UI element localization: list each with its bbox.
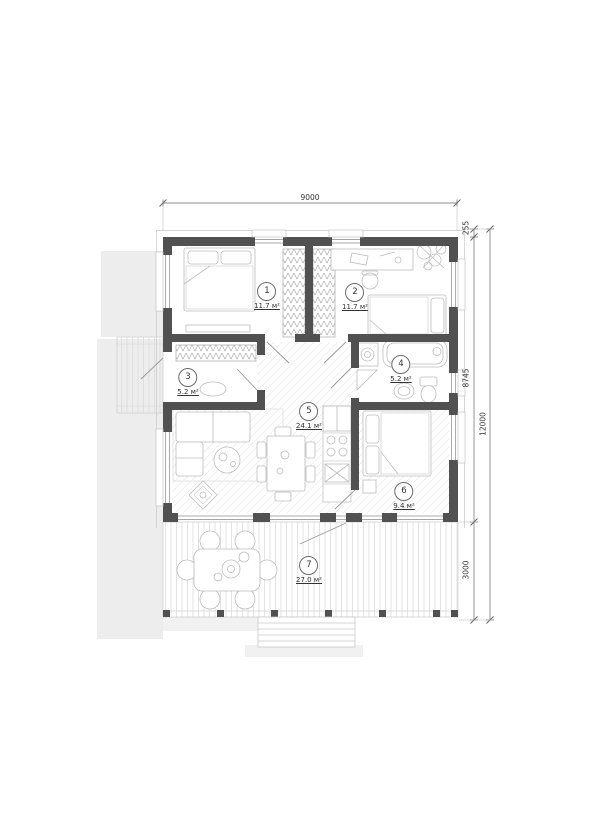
floor-plan-canvas: 9000 255 8745 3000 12000 1 11.7 м² 2 11.…: [0, 0, 600, 823]
furniture-room-2: [313, 244, 446, 337]
window-sill: [156, 429, 163, 506]
room-number: 5: [300, 402, 319, 421]
pillow: [431, 298, 444, 333]
window-sill: [458, 412, 465, 463]
wardrobe: [176, 345, 256, 361]
plant: [417, 244, 446, 270]
room-number: 6: [394, 482, 413, 501]
pillow: [188, 251, 218, 264]
dining-chair: [275, 492, 291, 501]
dining-chair: [257, 442, 266, 458]
dining-chair: [275, 427, 291, 436]
room-label-7: 7 27.0 м²: [296, 556, 322, 584]
cup: [239, 552, 249, 562]
washing-machine: [357, 343, 378, 366]
wardrobe: [283, 249, 305, 337]
room-number: 4: [391, 355, 410, 374]
cup: [214, 573, 222, 581]
room-area: 9.4 м²: [393, 502, 414, 510]
window-sill: [156, 252, 163, 311]
dining-chair: [306, 442, 315, 458]
dining-chair: [257, 466, 266, 482]
outdoor-chair: [200, 589, 220, 609]
dresser: [186, 325, 250, 332]
outdoor-chair: [235, 531, 255, 551]
coffee-table: [214, 447, 240, 473]
room-number: 2: [346, 283, 365, 302]
stairs: [258, 617, 355, 647]
nightstand: [363, 480, 376, 493]
room-label-6: 6 9.4 м²: [393, 482, 414, 510]
washbasin: [394, 383, 414, 399]
room-area: 5.2 м²: [390, 375, 411, 383]
pillow: [366, 415, 379, 443]
pillow: [366, 446, 379, 474]
room-label-1: 1 11.7 м²: [254, 282, 280, 310]
toilet: [420, 377, 437, 386]
room-area: 11.7 м²: [342, 303, 368, 311]
room-area: 5.2 м²: [177, 388, 198, 396]
window-sill: [329, 230, 363, 237]
room-area: 27.0 м²: [296, 576, 322, 584]
entry-porch: [117, 337, 163, 413]
furniture-room-1: [184, 248, 305, 337]
pillow: [221, 251, 251, 264]
room-area: 11.7 м²: [254, 302, 280, 310]
outdoor-chair: [200, 531, 220, 551]
window-sill: [458, 259, 465, 310]
room-number: 3: [178, 368, 197, 387]
dimension-house-depth: 8745: [462, 368, 471, 387]
toilet: [421, 386, 436, 403]
dimension-terrace-depth: 3000: [462, 560, 471, 579]
outdoor-chair: [235, 589, 255, 609]
dining-chair: [306, 466, 315, 482]
window-sill: [252, 230, 286, 237]
dimension-overhang: 255: [462, 221, 471, 235]
teapot: [222, 560, 240, 578]
dimension-width: 9000: [300, 193, 319, 202]
room-label-4: 4 5.2 м²: [390, 355, 411, 383]
pouf: [200, 382, 226, 396]
room-label-3: 3 5.2 м²: [177, 368, 198, 396]
room-number: 7: [300, 556, 319, 575]
room-label-2: 2 11.7 м²: [342, 283, 368, 311]
room-area: 24.1 м²: [296, 422, 322, 430]
room-number: 1: [258, 282, 277, 301]
sofa-corner: [176, 442, 203, 476]
dining-table: [267, 436, 305, 491]
room-label-5: 5 24.1 м²: [296, 402, 322, 430]
dimension-total-height: 12000: [479, 412, 488, 436]
